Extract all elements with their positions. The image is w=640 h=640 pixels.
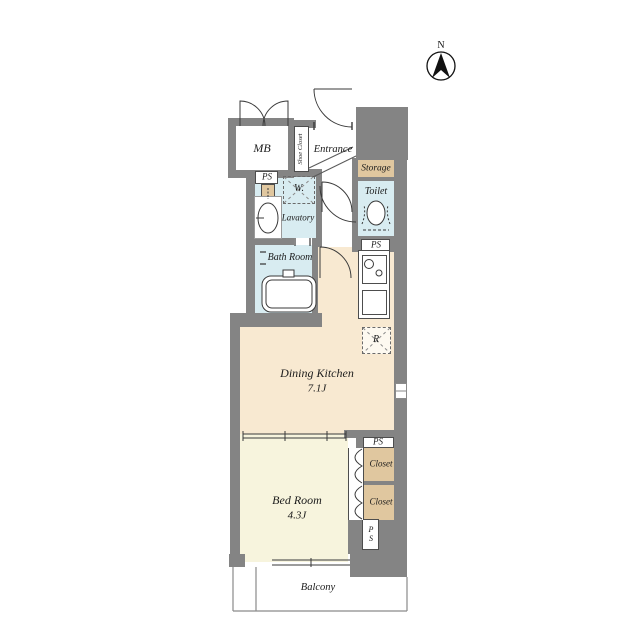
ps-toilet-label: PS (371, 241, 381, 250)
walk-in-closet-label: W. (294, 184, 304, 194)
bath-room-label: Bath Room (268, 253, 313, 263)
shoe-closet-label: Shoe Closet (298, 134, 305, 165)
ps-closet-label: PS (373, 438, 383, 447)
north-label: N (437, 41, 444, 51)
north-compass-icon (427, 52, 455, 80)
dining-kitchen-door (320, 247, 351, 278)
balcony-label: Balcony (301, 583, 335, 594)
bathtub (262, 270, 316, 312)
storage-label: Storage (361, 164, 391, 174)
floor-plan: N MB Shoe Closet Entrance Storage Toilet… (0, 0, 640, 640)
dining-kitchen-size-label: 7.1J (308, 384, 327, 395)
bed-room-size-label: 4.3J (288, 511, 307, 522)
ps-bottom-label: PS (367, 525, 375, 543)
closet-lower-label: Closet (369, 498, 392, 507)
mb-double-door (240, 101, 288, 126)
toilet-label: Toilet (365, 187, 387, 197)
toilet-fixture (362, 201, 390, 230)
closet-upper-label: Closet (369, 460, 392, 469)
entrance-door (314, 89, 352, 130)
closet-folding-doors (355, 449, 362, 519)
room-partition (243, 431, 346, 441)
floorplan-linework (0, 0, 640, 640)
lavatory-sink (256, 203, 278, 233)
lavatory-label: Lavatory (282, 214, 315, 223)
refrigerator-label: R (373, 335, 379, 345)
stove-burners (365, 260, 383, 277)
dining-kitchen-label: Dining Kitchen (280, 367, 354, 379)
balcony-window (272, 558, 350, 567)
mb-label: MB (253, 142, 270, 154)
entrance-label: Entrance (314, 145, 353, 156)
bed-room-label: Bed Room (272, 494, 322, 506)
ps-meter-label: PS (262, 173, 272, 182)
